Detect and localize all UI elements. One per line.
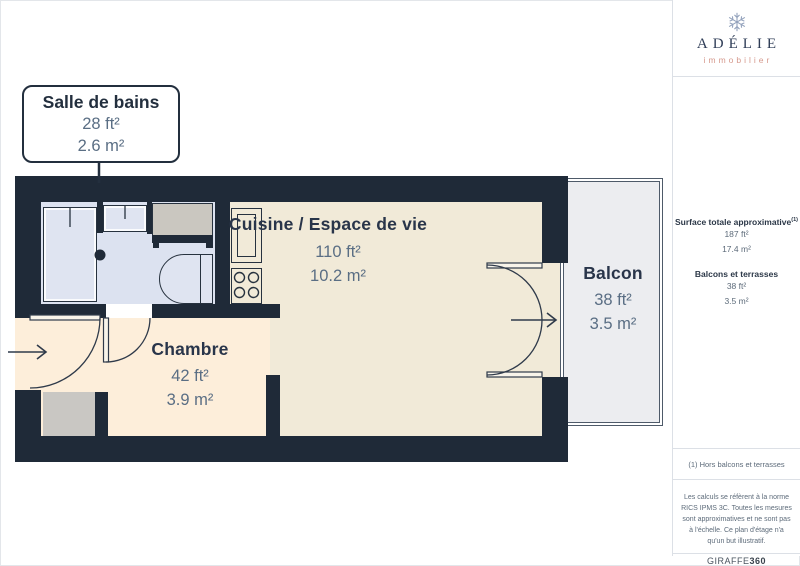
room-area-m: 3.5 m² (533, 312, 693, 336)
washing-machine-foot (153, 243, 159, 248)
disclaimer-text: Les calculs se réfèrent à la norme RICS … (673, 492, 800, 547)
snowflake-icon (726, 11, 748, 33)
bathroom-callout: Salle de bains 28 ft² 2.6 m² (22, 85, 180, 163)
wall (15, 436, 568, 462)
room-area: 110 ft² 10.2 m² (238, 240, 438, 288)
footnote-text: (1) Hors balcons et terrasses (688, 460, 784, 469)
wall (152, 304, 280, 318)
washing-machine-front (152, 235, 213, 243)
terrace-ft: 38 ft² (727, 279, 746, 294)
room-name: Balcon (533, 263, 693, 284)
wall (542, 377, 568, 436)
wall (147, 202, 152, 234)
footnote-card: (1) Hors balcons et terrasses (673, 449, 800, 480)
closet-floor (43, 392, 95, 436)
brand-name: ADÉLIE (692, 36, 781, 53)
room-area-ft: 28 ft² (24, 113, 178, 135)
surface-summary: Surface totale approximative(1) 187 ft² … (673, 77, 800, 449)
wall (97, 202, 103, 233)
surface-total-m: 17.4 m² (722, 242, 751, 257)
room-area-m: 2.6 m² (24, 135, 178, 157)
room-area-ft: 110 ft² (238, 240, 438, 264)
giraffe360-watermark: GIRAFFE360 (707, 556, 766, 566)
surface-total-text: Surface totale approximative (675, 217, 791, 227)
info-sidebar: ADÉLIE immobilier Surface totale approxi… (672, 0, 800, 556)
room-area: 42 ft² 3.9 m² (90, 364, 290, 412)
wall (15, 176, 568, 202)
disclaimer-card: Les calculs se réfèrent à la norme RICS … (673, 480, 800, 554)
terrace-m: 3.5 m² (724, 294, 748, 309)
wall (15, 202, 41, 318)
floorplan-page: Salle de bains 28 ft² 2.6 m² Cuisine / E… (0, 0, 800, 566)
room-area-m: 10.2 m² (238, 264, 438, 288)
agency-logo: ADÉLIE immobilier (673, 0, 800, 77)
room-name: Chambre (90, 339, 290, 360)
washing-machine-foot (206, 243, 213, 248)
room-area-m: 3.9 m² (90, 388, 290, 412)
watermark-bold: 360 (749, 556, 766, 566)
surface-footnote-ref: (1) (791, 217, 798, 223)
room-name: Cuisine / Espace de vie (178, 214, 478, 235)
shower (43, 207, 97, 302)
wall (41, 304, 106, 318)
sink (103, 205, 147, 232)
brand-tagline: immobilier (701, 55, 773, 65)
terrace-label: Balcons et terrasses (695, 269, 778, 279)
room-area-ft: 38 ft² (533, 288, 693, 312)
surface-total-ft: 187 ft² (724, 227, 748, 242)
surface-total-label: Surface totale approximative(1) (675, 217, 798, 227)
watermark-normal: GIRAFFE (707, 556, 750, 566)
wall (542, 202, 568, 263)
room-area: 38 ft² 3.5 m² (533, 288, 693, 336)
toilet-bowl (159, 254, 203, 304)
room-area-ft: 42 ft² (90, 364, 290, 388)
room-name: Salle de bains (24, 91, 178, 113)
entry-opening-floor (15, 318, 41, 390)
toilet-tank (200, 254, 213, 304)
